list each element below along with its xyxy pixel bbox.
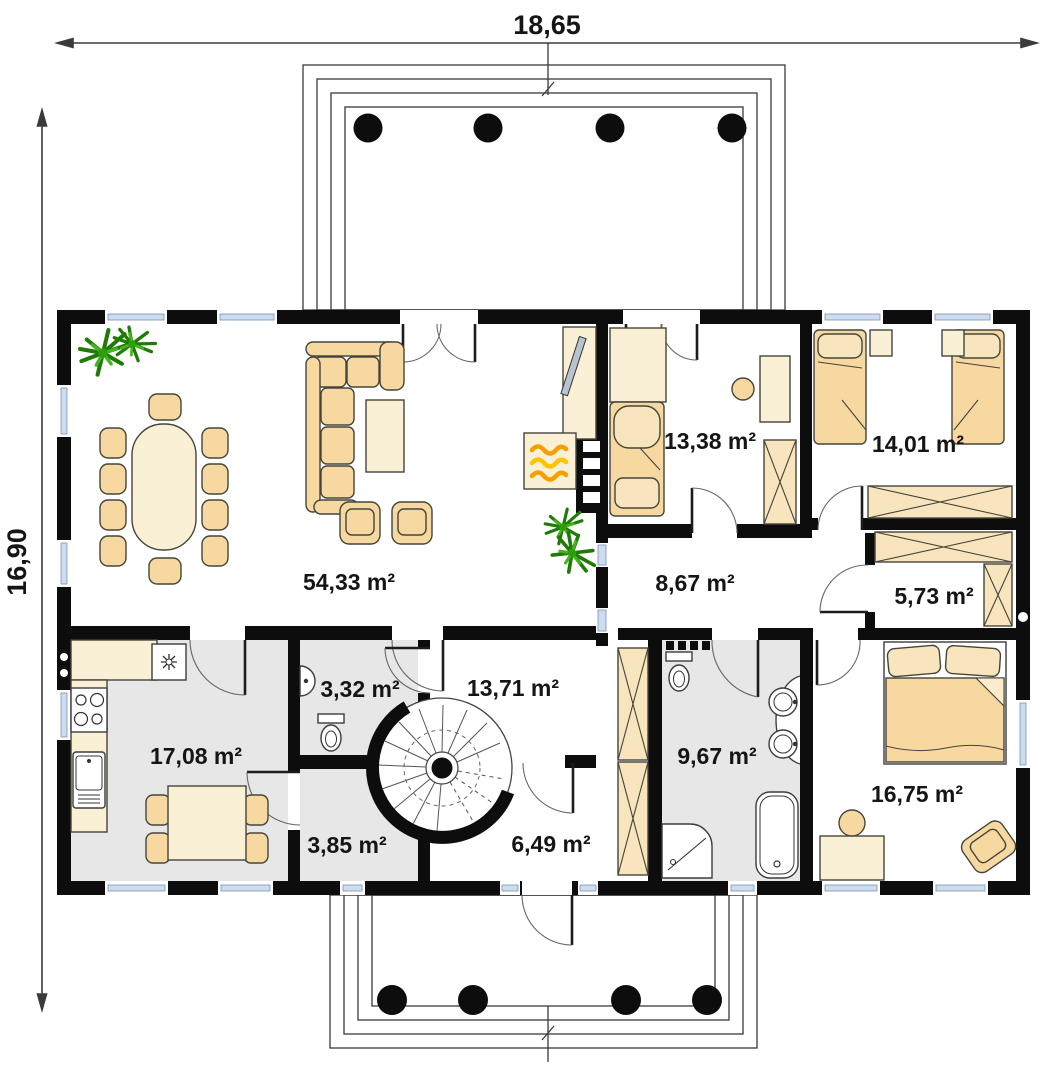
terrace-column <box>377 985 407 1015</box>
dining-table <box>132 424 196 550</box>
window <box>728 881 757 895</box>
window <box>57 690 71 740</box>
window <box>57 540 71 587</box>
terrace-column <box>474 114 503 143</box>
room-area-label: 54,33 m² <box>303 569 395 595</box>
room-area-label: 16,75 m² <box>871 781 963 807</box>
dining-chair <box>149 558 181 584</box>
dining-chair <box>100 464 126 494</box>
toilet <box>666 652 692 691</box>
window <box>340 881 365 895</box>
extractor-fan <box>152 644 186 680</box>
dining-chair <box>202 500 228 530</box>
double-bed <box>884 642 1006 764</box>
desk <box>820 836 884 880</box>
radiator-tooth <box>702 641 710 650</box>
single-bed <box>814 330 866 444</box>
kitchen-table <box>168 786 246 860</box>
coffee-table <box>366 400 404 472</box>
kitchen-counter <box>71 640 157 680</box>
window <box>105 310 167 324</box>
pillow <box>945 645 1001 677</box>
desk <box>760 356 790 422</box>
wardrobe <box>764 440 796 524</box>
window <box>822 310 883 324</box>
radiator-tooth <box>666 641 674 650</box>
window <box>1016 700 1030 768</box>
dining-chair <box>100 536 126 566</box>
window <box>822 881 880 895</box>
wall-segment <box>245 626 392 640</box>
bathtub <box>756 792 798 878</box>
room-area-label: 9,67 m² <box>677 743 757 769</box>
stove <box>71 688 107 732</box>
chimney-vent <box>583 492 600 503</box>
window <box>932 310 993 324</box>
wall-segment <box>288 830 300 895</box>
arrow-down-icon <box>38 994 47 1010</box>
wardrobe <box>618 762 648 875</box>
wall-segment <box>865 612 875 628</box>
terrace-column <box>718 114 747 143</box>
chimney-vent <box>583 475 600 486</box>
radiator-tooth <box>690 641 698 650</box>
wall-segment <box>565 755 596 768</box>
window <box>500 881 520 895</box>
wall-dot <box>60 653 68 661</box>
wardrobe <box>984 564 1012 626</box>
tv-cabinet <box>561 327 596 439</box>
chimney-vent <box>583 458 600 469</box>
wall-segment <box>57 626 190 640</box>
chair <box>146 795 170 825</box>
wall-segment <box>443 626 596 640</box>
room-area-label: 13,71 m² <box>467 675 559 701</box>
wardrobe <box>618 648 648 760</box>
terrace-top <box>303 65 785 310</box>
left-dimension: 16,90 <box>2 110 47 1010</box>
dining-chair <box>100 500 126 530</box>
floor-plan: 18,65 16,90 <box>0 0 1063 1080</box>
dining-chair <box>202 464 228 494</box>
wall-segment <box>618 628 712 640</box>
room-area-label: 14,01 m² <box>872 431 964 457</box>
wall-segment <box>800 324 812 538</box>
terrace-column <box>458 985 488 1015</box>
wall-segment <box>800 640 813 881</box>
wall-segment <box>1016 310 1030 895</box>
kitchen-sink <box>73 752 105 808</box>
interior-window <box>596 543 608 567</box>
wall-segment <box>648 640 662 881</box>
dining-chair <box>100 428 126 458</box>
shower <box>662 824 712 878</box>
wall-segment <box>862 518 1016 530</box>
terrace-bottom <box>330 895 757 1062</box>
wall-dot <box>60 669 68 677</box>
window <box>218 881 273 895</box>
room-area-label: 17,08 m² <box>150 743 242 769</box>
armchair <box>340 502 380 544</box>
armchair <box>392 502 432 544</box>
window <box>57 385 71 437</box>
corridor-wardrobes <box>618 648 648 875</box>
window <box>217 310 277 324</box>
terrace-column <box>692 985 722 1015</box>
room-area-label: 5,73 m² <box>894 583 974 609</box>
terrace-column <box>596 114 625 143</box>
chair <box>146 833 170 863</box>
arrow-right-icon <box>1021 39 1037 48</box>
pillow <box>887 645 941 677</box>
wall-segment <box>865 533 875 565</box>
nightstand <box>942 330 964 356</box>
arrow-left-icon <box>57 39 73 48</box>
door <box>522 881 572 945</box>
wardrobe <box>875 532 1012 562</box>
nightstand <box>870 330 892 356</box>
room-area-label: 3,85 m² <box>307 832 387 858</box>
chair <box>244 833 268 863</box>
wall-segment <box>288 626 300 772</box>
room-area-label: 3,32 m² <box>320 676 400 702</box>
room-area-label: 6,49 m² <box>511 831 591 857</box>
spiral-staircase <box>372 698 512 838</box>
room-area-label: 13,38 m² <box>664 428 756 454</box>
fireplace <box>524 433 576 489</box>
pillow <box>818 334 862 358</box>
wall-segment <box>858 628 1016 640</box>
terrace-column <box>354 114 383 143</box>
dining-chair <box>149 394 181 420</box>
chimney-vent <box>583 441 600 452</box>
interior-window <box>596 608 608 633</box>
closet-cabinet <box>610 328 666 402</box>
wall-dot <box>1018 612 1028 622</box>
arrow-up-icon <box>38 110 47 126</box>
dining-chair <box>202 428 228 458</box>
wall-segment <box>800 518 818 530</box>
height-dimension-label: 16,90 <box>2 528 32 596</box>
wall-segment <box>737 524 804 538</box>
window <box>105 881 168 895</box>
wall-segment <box>758 628 813 640</box>
radiator-tooth <box>678 641 686 650</box>
window <box>578 881 598 895</box>
kitchen-table-set <box>146 786 268 863</box>
window <box>933 881 988 895</box>
dining-chair <box>202 536 228 566</box>
room-area-label: 8,67 m² <box>655 570 735 596</box>
chair <box>244 795 268 825</box>
wall-segment <box>596 524 692 538</box>
width-dimension-label: 18,65 <box>513 10 581 40</box>
pillow <box>614 406 660 448</box>
single-bed <box>610 402 664 516</box>
desk-chair <box>839 810 865 836</box>
wall-segment <box>57 310 1030 324</box>
wardrobe <box>868 486 1012 518</box>
desk-chair <box>732 378 754 400</box>
top-dimension: 18,65 <box>57 10 1037 96</box>
terrace-column <box>611 985 641 1015</box>
